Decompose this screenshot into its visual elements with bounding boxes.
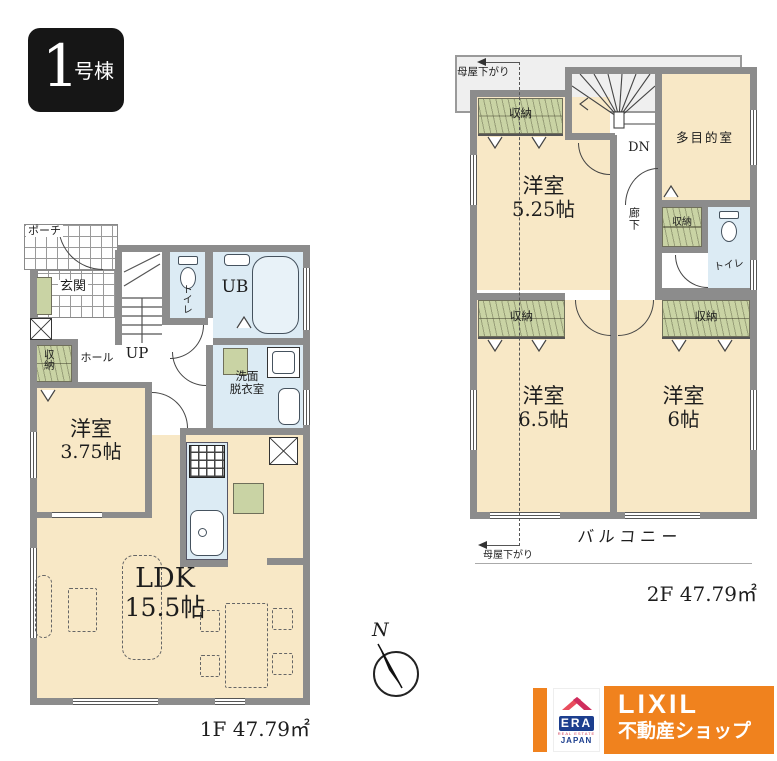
moya-sagari-arrow-line	[486, 545, 519, 546]
wall	[655, 67, 662, 140]
window	[303, 390, 310, 425]
wall	[162, 252, 170, 318]
tv-board	[35, 575, 52, 638]
hall-label: ホール	[70, 352, 124, 364]
wall	[267, 558, 303, 565]
shoe-box	[30, 318, 52, 340]
closet-left-label: 収納	[478, 310, 565, 323]
lixil-wordmark: LIXIL	[618, 686, 774, 722]
door-arc	[675, 255, 708, 288]
window	[215, 698, 245, 705]
window	[490, 512, 560, 519]
floor2-plan: 母屋下がり 母屋下がり バルコニー 収納 DN 多目的室 洋室 5.25帖 廊下…	[455, 55, 777, 620]
window	[470, 390, 477, 450]
era-region: JAPAN	[554, 736, 599, 746]
hall-closet-label: 収納	[42, 349, 54, 370]
bathtub	[252, 256, 299, 334]
bedroom-65-label: 洋室 6.5帖	[477, 385, 610, 430]
wall	[470, 90, 565, 97]
wall	[702, 207, 708, 247]
floor1-area-label: 1F 47.79㎡	[152, 718, 310, 740]
wall	[610, 135, 617, 512]
wall	[206, 345, 213, 428]
window	[73, 698, 158, 705]
balcony-rail-line	[475, 563, 752, 564]
wall	[655, 200, 750, 207]
wall	[213, 338, 303, 345]
toilet2-floor	[708, 207, 750, 288]
window	[750, 110, 757, 165]
ldk-label: LDK 15.5帖	[100, 564, 230, 622]
arrow-left-icon	[478, 541, 487, 549]
wall	[30, 382, 152, 388]
kitchen-sink	[190, 510, 224, 556]
window	[750, 260, 757, 290]
moya-sagari-arrow-line	[485, 62, 520, 63]
kitchen-faucet	[198, 528, 207, 537]
washroom-sink	[278, 388, 300, 425]
closet-fold-mark	[487, 339, 503, 352]
chair	[272, 608, 293, 630]
window	[303, 268, 310, 330]
chair	[272, 653, 293, 675]
wall	[145, 388, 152, 518]
era-wordmark: ERA	[559, 716, 594, 731]
closet-top-label: 収納	[478, 107, 563, 120]
compass-needle-icon	[352, 622, 436, 706]
moya-sagari-label-top: 母屋下がり	[457, 67, 510, 79]
entrance-label: 玄関	[58, 280, 88, 295]
closet-fold-mark	[717, 339, 733, 352]
wall	[180, 428, 303, 435]
wall	[205, 250, 213, 318]
multipurpose-label: 多目的室	[660, 131, 750, 145]
arrow-left-icon	[477, 58, 486, 66]
moya-sagari-label-bottom: 母屋下がり	[483, 550, 533, 561]
door-arc	[172, 352, 206, 386]
building-badge: 1 号棟	[28, 28, 124, 112]
low-table	[68, 588, 97, 632]
lixil-sub: 不動産ショップ	[618, 720, 774, 744]
dining-table	[225, 603, 268, 688]
toilet-tank	[178, 256, 198, 265]
door-arc	[625, 168, 658, 205]
washroom-label: 洗面 脱衣室	[215, 370, 279, 396]
floorplan-page: 1 号棟	[0, 0, 777, 761]
closet-fold-mark	[487, 136, 503, 149]
bedroom-375-label: 洋室 3.75帖	[36, 418, 146, 463]
bath-folding-door	[236, 316, 252, 329]
wall	[662, 247, 708, 253]
chair	[200, 655, 220, 677]
closet-fold-mark	[531, 339, 547, 352]
bath-label: UB	[213, 278, 257, 297]
bedroom-525-label: 洋室 5.25帖	[477, 175, 610, 220]
wall	[565, 67, 572, 140]
wall	[470, 293, 565, 300]
toilet1-label: トイレ	[180, 284, 191, 314]
porch-label: ポーチ	[26, 225, 63, 237]
stove	[189, 445, 225, 478]
stairs-dn	[572, 74, 655, 135]
floor1-plan: ポーチ 玄関 収納 UP ホール トイレ UB 洗面 脱衣室 洋室 3.75帖 …	[12, 212, 344, 761]
door-arc	[152, 392, 188, 428]
toilet-bowl	[721, 221, 737, 242]
refrigerator-space	[269, 437, 298, 465]
window	[470, 155, 477, 205]
wall	[655, 293, 757, 300]
bath-sink	[224, 254, 250, 266]
moya-sagari-line	[519, 62, 520, 546]
badge-suffix: 号棟	[74, 60, 114, 82]
window	[625, 512, 700, 519]
wall	[30, 698, 310, 705]
bedroom-6-label: 洋室 6帖	[617, 385, 750, 430]
compass-north-label: N	[372, 620, 389, 641]
wall	[655, 140, 662, 295]
era-roof-icon	[561, 696, 593, 711]
corridor-label: 廊下	[627, 207, 639, 231]
era-logo: ERA REAL ESTATE JAPAN	[553, 688, 600, 752]
stairs-dn-label: DN	[621, 141, 657, 156]
window	[750, 390, 757, 450]
closet-fold-mark	[531, 136, 547, 149]
window	[52, 512, 102, 518]
stairs-up	[122, 250, 162, 345]
toilet-tank	[719, 211, 739, 219]
closet-fold-mark	[40, 389, 56, 402]
closet-right-label: 収納	[662, 310, 750, 323]
closet-small-label: 収納	[662, 217, 702, 228]
balcony-label: バルコニー	[549, 528, 711, 546]
wall	[115, 250, 122, 345]
ldk-cabinet	[233, 483, 264, 514]
brand-logo: ERA REAL ESTATE JAPAN LIXIL 不動産ショップ	[530, 684, 777, 756]
logo-orange-bar	[533, 688, 547, 752]
floor2-area-label: 2F 47.79㎡	[615, 583, 757, 605]
lixil-box: LIXIL 不動産ショップ	[604, 686, 774, 754]
closet-fold-mark	[671, 339, 687, 352]
wall	[162, 318, 208, 325]
closet-fold-mark	[663, 185, 679, 198]
compass: N	[352, 622, 436, 706]
